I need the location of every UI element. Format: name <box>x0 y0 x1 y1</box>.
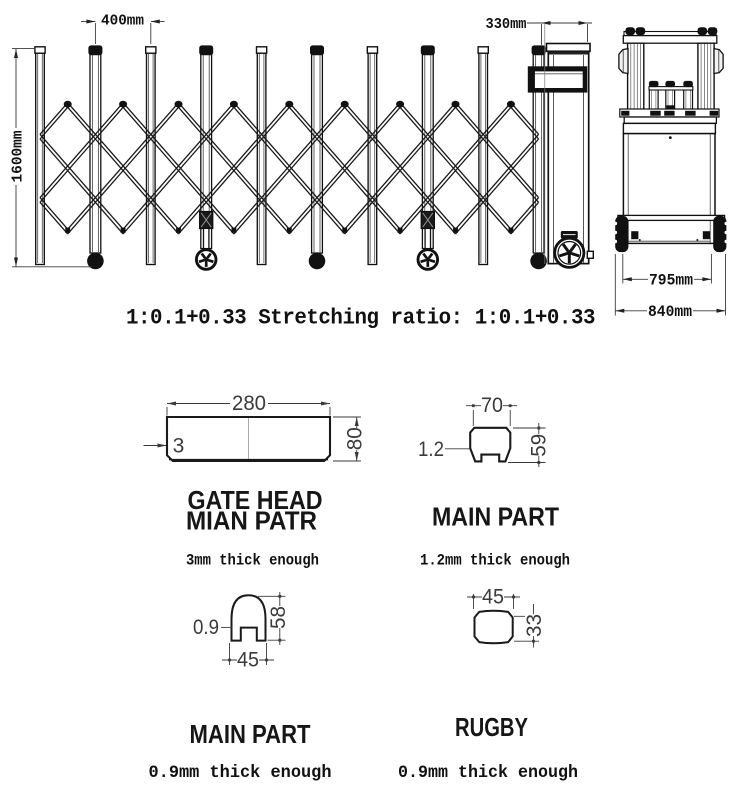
svg-text:MIAN PATR: MIAN PATR <box>186 506 317 536</box>
svg-text:0.9mm thick enough: 0.9mm thick enough <box>398 763 578 783</box>
svg-text:1:0.1+0.33 Stretching ratio: 1: 1:0.1+0.33 Stretching ratio: 1:0.1+0.33 <box>126 305 595 331</box>
svg-text:59: 59 <box>528 434 551 457</box>
svg-text:840mm: 840mm <box>648 303 692 321</box>
svg-text:RUGBY: RUGBY <box>455 712 528 742</box>
svg-text:70: 70 <box>481 394 503 417</box>
svg-text:3mm thick enough: 3mm thick enough <box>186 552 319 570</box>
svg-text:58: 58 <box>267 606 290 629</box>
svg-text:3: 3 <box>173 435 185 458</box>
svg-text:1600mm: 1600mm <box>10 131 27 183</box>
svg-text:MAIN PART: MAIN PART <box>432 502 559 532</box>
svg-text:1.2: 1.2 <box>418 438 444 461</box>
svg-text:330mm: 330mm <box>486 16 527 33</box>
svg-text:45: 45 <box>237 649 259 672</box>
svg-text:33: 33 <box>523 614 546 637</box>
svg-text:MAIN PART: MAIN PART <box>190 719 311 749</box>
svg-text:795mm: 795mm <box>649 271 693 289</box>
svg-text:400mm: 400mm <box>101 13 144 30</box>
svg-text:0.9: 0.9 <box>193 616 219 639</box>
svg-text:80: 80 <box>344 427 367 450</box>
svg-text:45: 45 <box>482 586 504 609</box>
svg-text:0.9mm thick enough: 0.9mm thick enough <box>149 763 332 783</box>
svg-text:1.2mm thick enough: 1.2mm thick enough <box>420 552 570 570</box>
svg-text:280: 280 <box>232 392 266 415</box>
